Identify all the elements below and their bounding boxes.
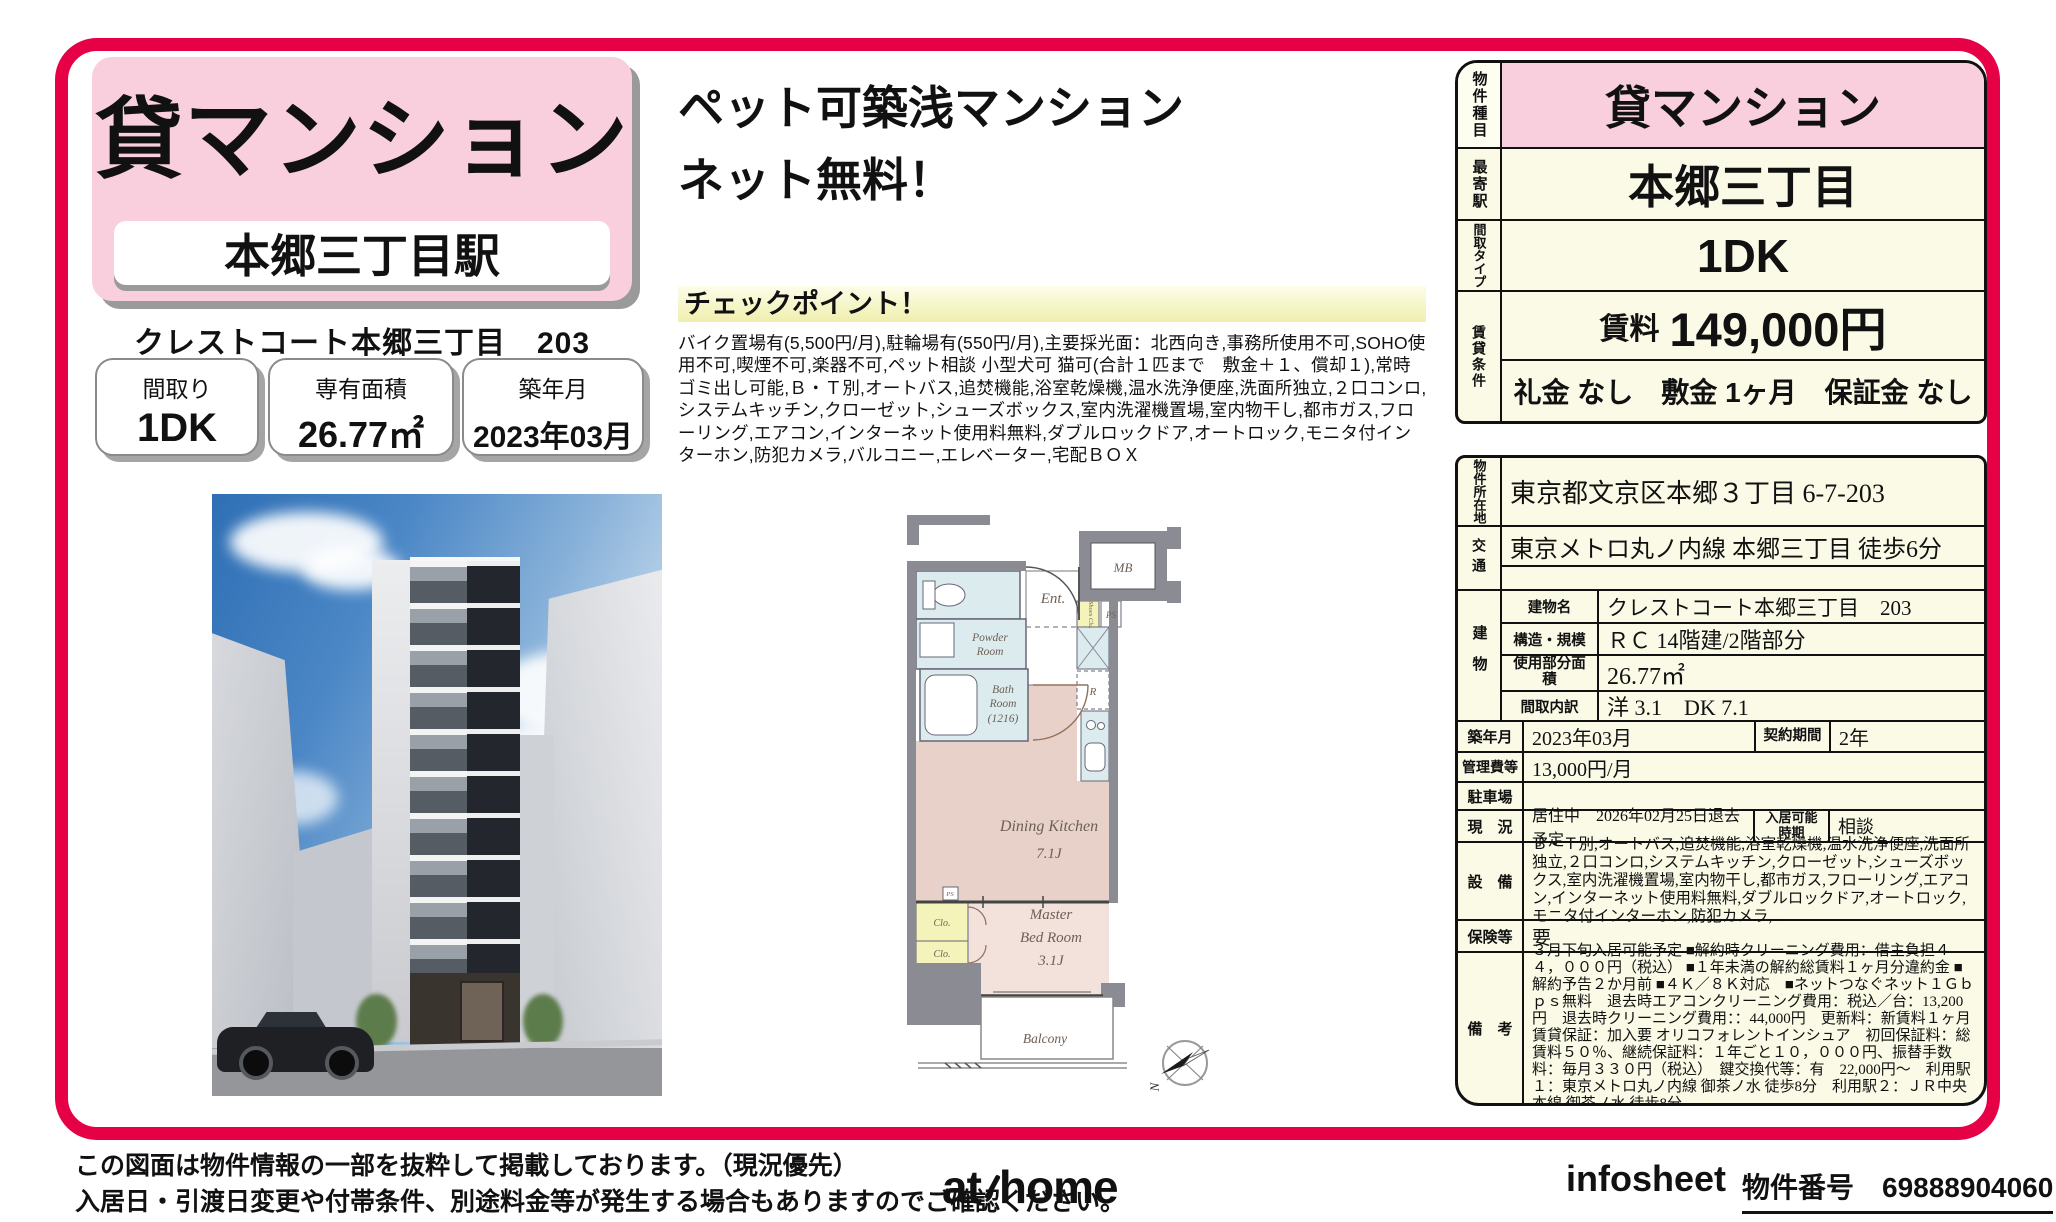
wall xyxy=(1167,581,1181,603)
notes-label: 備 考 xyxy=(1458,953,1524,1103)
structure-value: ＲＣ 14階建/2階部分 xyxy=(1599,624,1984,654)
floorplan: N Ent. MB Shoes Clo. PS PS Powder Room B… xyxy=(893,515,1245,1115)
label-meter-box: MB xyxy=(1113,560,1133,575)
contract-label: 契約期間 xyxy=(1754,722,1831,751)
balcony-area xyxy=(981,997,1113,1059)
stat-layout: 間取り 1DK xyxy=(95,358,259,456)
stat-area: 専有面積 26.77㎡ xyxy=(268,358,454,456)
label-shoes-closet: Shoes Clo. xyxy=(1087,601,1094,629)
building-name-value: クレストコート本郷三丁目 203 xyxy=(1599,591,1984,622)
label-closet-2: Clo. xyxy=(934,949,951,960)
catch-copy: ペット可築浅マンション ネット無料！ xyxy=(678,85,1438,203)
notes-value: ３月下旬入居可能予定 ■解約時クリーニング費用：借主負担４４，０００円（税込） … xyxy=(1524,953,1984,1103)
car-wheel xyxy=(325,1046,359,1080)
stove-burner xyxy=(1098,723,1105,730)
north-letter: N xyxy=(1147,1081,1162,1092)
contract-value: 2年 xyxy=(1831,722,1984,751)
summary-type-value: 貸マンション xyxy=(1502,63,1984,147)
stat-layout-label: 間取り xyxy=(97,370,257,404)
wall xyxy=(1167,527,1181,549)
station-name: 本郷三丁目駅 xyxy=(224,220,500,286)
stat-area-value: 26.77㎡ xyxy=(270,406,452,458)
label-bath-1: Bath xyxy=(992,684,1014,696)
summary-table: 物件種目 貸マンション 最寄駅 本郷三丁目 間取タイプ 1DK 賃貸条件 賃料 … xyxy=(1455,60,1987,424)
property-category-title: 貸マンション xyxy=(92,69,632,196)
building-label: 建物 xyxy=(1458,591,1502,720)
summary-layout-value: 1DK xyxy=(1502,221,1984,290)
property-number-value: 69888904060 xyxy=(1882,1172,2053,1203)
athome-logo: at home xyxy=(942,1160,1118,1214)
equipment-value: Ｂ・Ｔ別,オートバス,追焚機能,浴室乾燥機,温水洗浄便座,洗面所独立,２口コンロ… xyxy=(1524,843,1984,919)
structure-label: 構造・規模 xyxy=(1502,624,1599,654)
label-closet-1: Clo. xyxy=(934,918,951,929)
wall xyxy=(907,571,916,963)
label-entrance: Ent. xyxy=(1040,591,1066,607)
stove-burner xyxy=(1087,721,1096,730)
label-balcony: Balcony xyxy=(1023,1031,1067,1046)
footer-disclaimer-1: この図面は物件情報の一部を抜粋して掲載しております。（現況優先） xyxy=(75,1146,858,1182)
stat-built: 築年月 2023年03月 xyxy=(462,358,644,456)
detail-table: 物件所在地 東京都文京区本郷３丁目 6-7-203 交通 東京メトロ丸ノ内線 本… xyxy=(1455,455,1987,1106)
stat-layout-value: 1DK xyxy=(97,406,257,451)
label-pipe-space: PS xyxy=(1105,610,1116,620)
toilet-icon xyxy=(933,584,965,606)
rent-value: 149,000円 xyxy=(1670,291,1887,360)
layout-detail-label: 間取内訳 xyxy=(1502,692,1599,720)
summary-station-label: 最寄駅 xyxy=(1458,149,1502,219)
catch-copy-line1: ペット可築浅マンション xyxy=(678,85,1438,131)
summary-station-value: 本郷三丁目 xyxy=(1502,149,1984,219)
washstand-icon xyxy=(920,623,954,657)
wall xyxy=(907,963,981,1025)
equipment-label: 設 備 xyxy=(1458,843,1524,919)
terms-value: 礼金 なし 敷金 1ヶ月 保証金 なし xyxy=(1514,371,1973,411)
parking-label: 駐車場 xyxy=(1458,783,1524,809)
label-dk-size: 7.1J xyxy=(1036,846,1063,862)
summary-terms-label: 賃貸条件 xyxy=(1458,292,1502,421)
used-area-label: 使用部分面積 xyxy=(1502,656,1599,690)
label-bedroom-1: Master xyxy=(1029,907,1073,923)
stat-area-label: 専有面積 xyxy=(270,370,452,404)
layout-detail-value: 洋 3.1 DK 7.1 xyxy=(1599,692,1984,720)
catch-copy-line2: ネット無料！ xyxy=(678,157,1438,203)
traffic-line1: 東京メトロ丸ノ内線 本郷三丁目 徒歩6分 xyxy=(1502,527,1984,565)
label-bath-2: Room xyxy=(989,698,1017,710)
property-number: 物件番号69888904060 xyxy=(1742,1166,2053,1214)
label-bath-3: (1216) xyxy=(988,713,1019,725)
stat-built-label: 築年月 xyxy=(464,370,642,404)
station-name-box: 本郷三丁目駅 xyxy=(114,221,610,285)
traffic-label: 交通 xyxy=(1458,527,1502,589)
toilet-tank-icon xyxy=(923,581,935,609)
traffic-line2 xyxy=(1502,565,1984,589)
fee-label: 管理費等 xyxy=(1458,753,1524,781)
property-number-label: 物件番号 xyxy=(1742,1172,1854,1203)
infosheet-label: infosheet xyxy=(1566,1158,1726,1200)
used-area-value: 26.77㎡ xyxy=(1599,656,1984,690)
label-bedroom-2: Bed Room xyxy=(1020,930,1082,946)
infosheet-page: 貸マンション 本郷三丁目駅 クレストコート本郷三丁目 203 間取り 1DK 専… xyxy=(0,0,2056,1222)
checkpoint-heading: チェックポイント！ xyxy=(678,286,1426,322)
wall xyxy=(907,515,990,545)
insurance-label: 保険等 xyxy=(1458,921,1524,951)
stat-built-value: 2023年03月 xyxy=(464,412,642,456)
label-dining-kitchen: Dining Kitchen xyxy=(999,818,1098,835)
building-name-line: クレストコート本郷三丁目 203 xyxy=(92,318,632,362)
compass: N xyxy=(1147,1041,1209,1092)
wall xyxy=(907,561,1026,571)
tower-side-face xyxy=(372,560,410,1042)
tower-entrance-door xyxy=(460,981,505,1042)
checkpoint-body: バイク置場有(5,500円/月),駐輪場有(550円/月),主要採光面：北西向き… xyxy=(678,332,1428,466)
summary-type-label: 物件種目 xyxy=(1458,63,1502,147)
property-category-card: 貸マンション 本郷三丁目駅 xyxy=(92,57,632,301)
address-value: 東京都文京区本郷３丁目 6-7-203 xyxy=(1502,458,1984,525)
tree xyxy=(523,994,564,1048)
hatch-marks xyxy=(945,1063,981,1068)
athome-logo-at: at xyxy=(942,1160,981,1214)
wall xyxy=(1109,601,1118,903)
label-pipe-space-2: PS xyxy=(945,891,954,898)
building-name-label: 建物名 xyxy=(1502,591,1599,622)
athome-logo-home: home xyxy=(999,1160,1118,1214)
built-label: 築年月 xyxy=(1458,722,1524,751)
built-value: 2023年03月 xyxy=(1524,722,1754,751)
label-bedroom-size: 3.1J xyxy=(1037,953,1065,969)
sink-icon xyxy=(1085,743,1105,771)
bathtub-icon xyxy=(925,675,977,735)
fee-value: 13,000円/月 xyxy=(1524,753,1984,781)
rent-label: 賃料 xyxy=(1600,304,1660,348)
building-photo xyxy=(212,494,662,1096)
label-refrigerator: R xyxy=(1089,686,1097,698)
label-powder-1: Powder xyxy=(971,632,1008,644)
summary-layout-label: 間取タイプ xyxy=(1458,221,1502,290)
address-label: 物件所在地 xyxy=(1458,458,1502,525)
status-label: 現 況 xyxy=(1458,811,1524,841)
label-powder-2: Room xyxy=(976,646,1004,658)
